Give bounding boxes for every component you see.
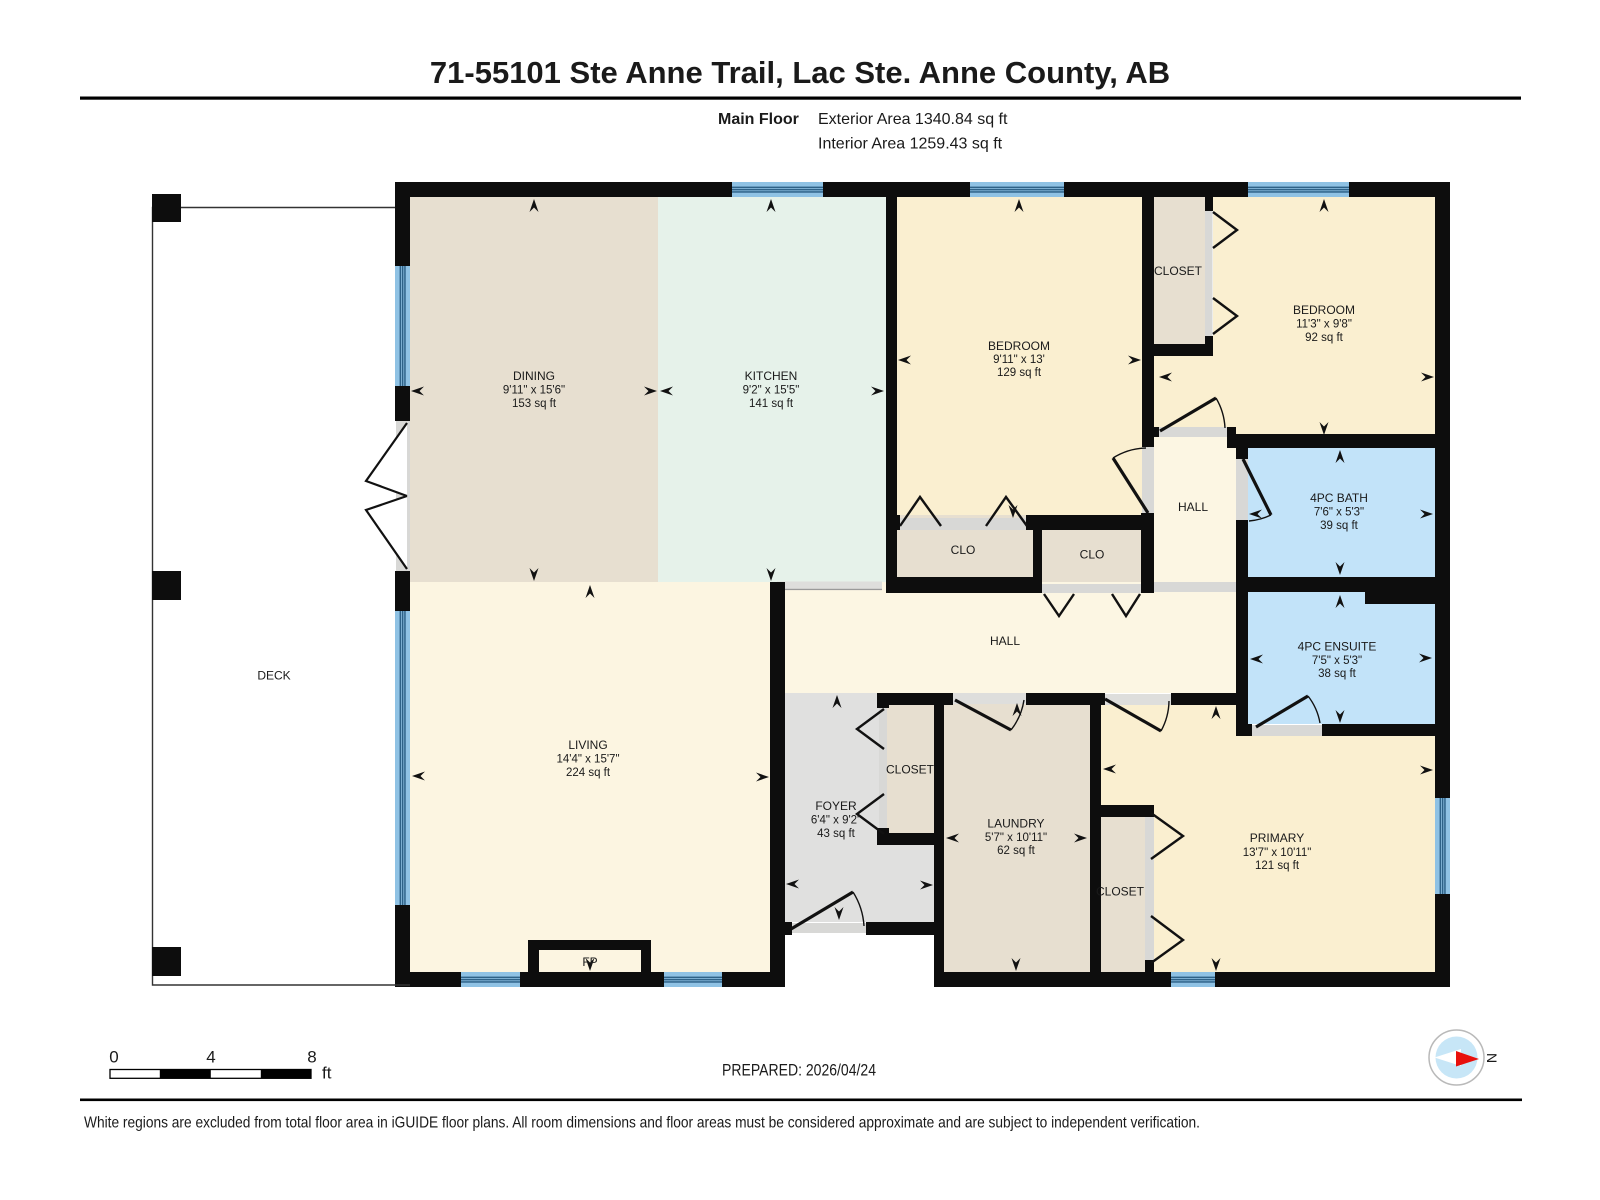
svg-text:White regions are excluded fro: White regions are excluded from total fl… <box>84 1115 1200 1132</box>
svg-text:7'6" x 5'3": 7'6" x 5'3" <box>1314 507 1364 519</box>
svg-text:71-55101 Ste Anne Trail, Lac S: 71-55101 Ste Anne Trail, Lac Ste. Anne C… <box>430 55 1170 90</box>
svg-text:8: 8 <box>307 1048 316 1067</box>
svg-text:38 sq ft: 38 sq ft <box>1318 668 1357 680</box>
svg-text:153 sq ft: 153 sq ft <box>512 398 557 410</box>
svg-text:CLO: CLO <box>951 543 976 557</box>
svg-text:BEDROOM: BEDROOM <box>1293 303 1355 317</box>
svg-text:9'11" x 13': 9'11" x 13' <box>993 354 1045 366</box>
svg-text:HALL: HALL <box>990 634 1020 648</box>
svg-text:FOYER: FOYER <box>815 799 857 813</box>
svg-text:6'4" x 9'2": 6'4" x 9'2" <box>811 815 861 827</box>
svg-text:9'11" x 15'6": 9'11" x 15'6" <box>503 385 565 397</box>
svg-text:Main Floor: Main Floor <box>718 111 799 128</box>
svg-text:43 sq ft: 43 sq ft <box>817 828 856 840</box>
svg-text:0: 0 <box>109 1048 118 1067</box>
svg-text:39 sq ft: 39 sq ft <box>1320 520 1359 532</box>
svg-text:CLOSET: CLOSET <box>886 763 935 777</box>
svg-text:129 sq ft: 129 sq ft <box>997 367 1042 379</box>
svg-text:14'4" x 15'7": 14'4" x 15'7" <box>556 754 619 766</box>
svg-text:5'7" x 10'11": 5'7" x 10'11" <box>985 832 1047 844</box>
svg-text:121 sq ft: 121 sq ft <box>1255 860 1300 872</box>
svg-text:FP: FP <box>582 955 597 969</box>
svg-text:CLOSET: CLOSET <box>1154 264 1203 278</box>
svg-text:CLOSET: CLOSET <box>1096 885 1145 899</box>
svg-text:LIVING: LIVING <box>568 738 607 752</box>
svg-text:141 sq ft: 141 sq ft <box>749 398 794 410</box>
svg-text:4: 4 <box>206 1048 215 1067</box>
svg-text:HALL: HALL <box>1178 500 1208 514</box>
svg-text:62 sq ft: 62 sq ft <box>997 845 1036 857</box>
svg-text:92 sq ft: 92 sq ft <box>1305 332 1344 344</box>
svg-text:Exterior Area 1340.84 sq ft: Exterior Area 1340.84 sq ft <box>818 111 1008 128</box>
svg-text:7'5" x 5'3": 7'5" x 5'3" <box>1312 655 1362 667</box>
svg-text:4PC BATH: 4PC BATH <box>1310 491 1368 505</box>
svg-text:11'3" x 9'8": 11'3" x 9'8" <box>1296 319 1352 331</box>
svg-text:9'2" x 15'5": 9'2" x 15'5" <box>743 385 800 397</box>
svg-text:Interior Area 1259.43 sq ft: Interior Area 1259.43 sq ft <box>818 136 1003 153</box>
svg-text:224 sq ft: 224 sq ft <box>566 767 611 779</box>
svg-text:N: N <box>1484 1053 1500 1063</box>
svg-text:KITCHEN: KITCHEN <box>745 369 798 383</box>
svg-text:4PC ENSUITE: 4PC ENSUITE <box>1298 640 1377 654</box>
svg-text:DECK: DECK <box>257 669 290 683</box>
svg-text:DINING: DINING <box>513 369 555 383</box>
svg-text:ft: ft <box>322 1064 332 1083</box>
svg-text:LAUNDRY: LAUNDRY <box>987 817 1044 831</box>
svg-text:PRIMARY: PRIMARY <box>1250 831 1304 845</box>
svg-text:CLO: CLO <box>1080 548 1105 562</box>
svg-text:BEDROOM: BEDROOM <box>988 339 1050 353</box>
svg-text:13'7" x 10'11": 13'7" x 10'11" <box>1243 847 1312 859</box>
svg-text:PREPARED: 2026/04/24: PREPARED: 2026/04/24 <box>722 1061 876 1080</box>
